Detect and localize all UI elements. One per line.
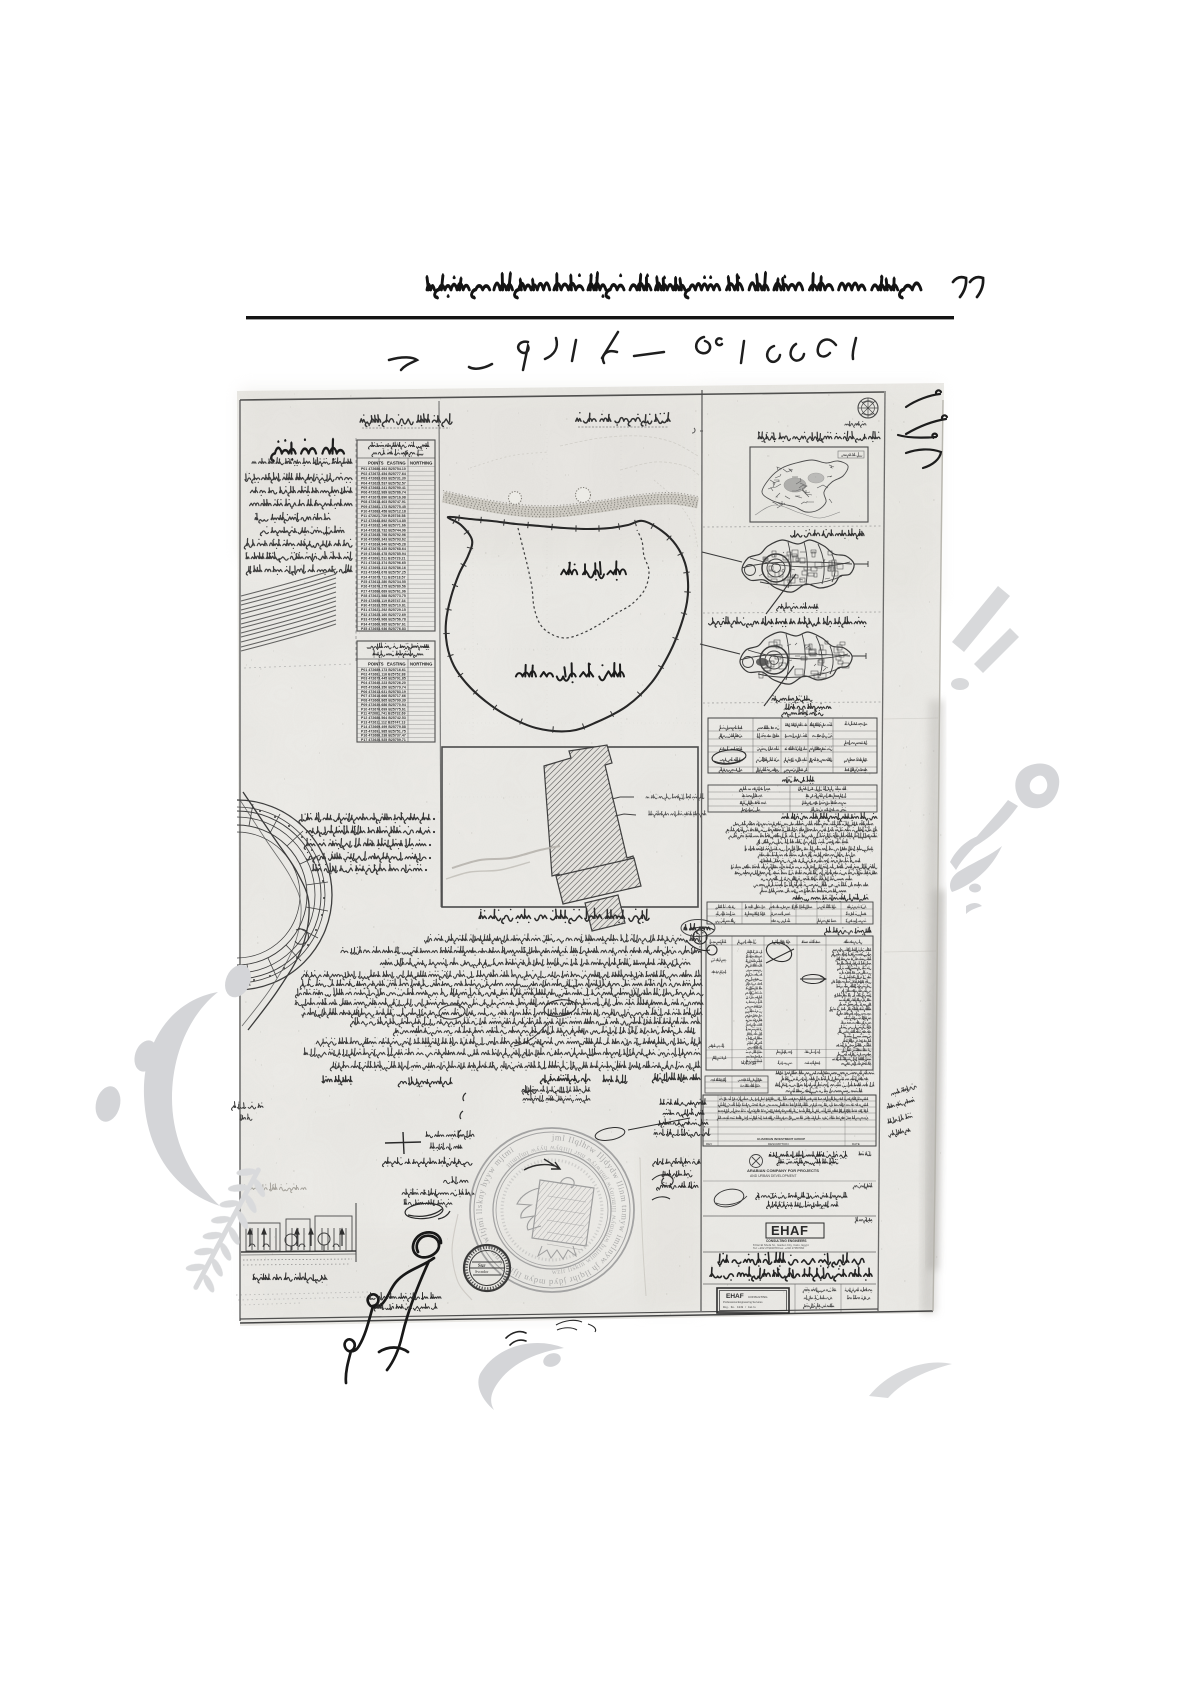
- svg-text:P07 472675.890 B25716.98: P07 472675.890 B25716.98: [361, 495, 406, 499]
- svg-text:P29 472658.119 B25747.34: P29 472658.119 B25747.34: [361, 599, 406, 603]
- svg-text:P08 472660.865 B25799.39: P08 472660.865 B25799.39: [361, 699, 406, 703]
- svg-text:Reg. No. 1049 / Cairo: Reg. No. 1049 / Cairo: [723, 1305, 756, 1309]
- svg-text:POINTS: POINTS: [368, 461, 384, 466]
- svg-text:P30 472633.555 B25710.81: P30 472633.555 B25710.81: [361, 604, 406, 608]
- svg-text:EHAF: EHAF: [726, 1293, 744, 1300]
- svg-text:P20 472691.511 B25729.21: P20 472691.511 B25729.21: [361, 557, 406, 561]
- svg-text:P01 472686.464 B25754.10: P01 472686.464 B25754.10: [361, 467, 406, 471]
- svg-text:P27 472686.689 B25761.96: P27 472686.689 B25761.96: [361, 589, 406, 593]
- svg-text:P09 472630.686 B25770.94: P09 472630.686 B25770.94: [361, 703, 406, 707]
- svg-text:P13 472632.148 B25771.66: P13 472632.148 B25771.66: [361, 524, 406, 528]
- svg-text:P18 472676.435 B25768.64: P18 472676.435 B25768.64: [361, 547, 406, 551]
- svg-text:POINTS: POINTS: [368, 662, 384, 667]
- svg-text:P31 472621.292 B25729.15: P31 472621.292 B25729.15: [361, 608, 406, 612]
- svg-text:P15 472691.985 B25751.75: P15 472691.985 B25751.75: [361, 729, 406, 733]
- svg-text:P23 472643.678 B25757.25: P23 472643.678 B25757.25: [361, 571, 406, 575]
- svg-text:P34 472660.985 B25767.61: P34 472660.985 B25767.61: [361, 622, 406, 626]
- svg-text:P02 472681.116 B25752.88: P02 472681.116 B25752.88: [361, 672, 406, 676]
- svg-text:P04 472625.537 B25752.57: P04 472625.537 B25752.57: [361, 481, 406, 485]
- svg-text:P03 472675.445 B25791.85: P03 472675.445 B25791.85: [361, 677, 406, 681]
- svg-text:P26 472676.275 B25780.56: P26 472676.275 B25780.56: [361, 585, 406, 589]
- svg-text:Svcndor: Svcndor: [475, 1269, 489, 1274]
- svg-text:P11 472621.739 B25736.58: P11 472621.739 B25736.58: [361, 514, 406, 518]
- svg-text:P12 472686.564 B25742.53: P12 472686.564 B25742.53: [361, 716, 406, 720]
- svg-text:P21 472613.374 B25796.65: P21 472613.374 B25796.65: [361, 561, 406, 565]
- svg-text:NORTHING: NORTHING: [410, 662, 432, 667]
- svg-text:P15 472635.798 B25792.96: P15 472635.798 B25792.96: [361, 533, 406, 537]
- svg-text:GUARDIAN INVESTMENT GROUP: GUARDIAN INVESTMENT GROUP: [757, 1137, 805, 1141]
- svg-text:P33 472649.968 B25756.78: P33 472649.968 B25756.78: [361, 618, 406, 622]
- svg-text:P19 472640.478 B25785.94: P19 472640.478 B25785.94: [361, 552, 406, 556]
- svg-text:P35 472653.936 B25776.83: P35 472653.936 B25776.83: [361, 627, 406, 631]
- svg-text:P01 472689.173 B25716.61: P01 472689.173 B25716.61: [361, 668, 406, 672]
- svg-text:P28 472621.588 B25773.75: P28 472621.588 B25773.75: [361, 594, 406, 598]
- svg-text:DATE: DATE: [852, 1142, 860, 1146]
- svg-text:P03 472683.693 B25731.30: P03 472683.693 B25731.30: [361, 477, 406, 481]
- svg-text:EHAF: EHAF: [771, 1223, 808, 1238]
- svg-text:P11 472681.741 B25732.69: P11 472681.741 B25732.69: [361, 712, 406, 716]
- svg-text:P16 472660.343 B25793.62: P16 472660.343 B25793.62: [361, 538, 406, 542]
- svg-text:P32 472625.160 B25772.69: P32 472625.160 B25772.69: [361, 613, 406, 617]
- svg-text:DESCRIPTION: DESCRIPTION: [768, 1142, 789, 1146]
- svg-text:P12 472648.892 B25714.85: P12 472648.892 B25714.85: [361, 519, 406, 523]
- svg-text:AND URBAN DEVELOPMENT: AND URBAN DEVELOPMENT: [750, 1174, 797, 1178]
- svg-text:P17 472626.525 B25759.71: P17 472626.525 B25759.71: [361, 738, 406, 742]
- svg-text:P06 472622.989 B25786.74: P06 472622.989 B25786.74: [361, 491, 406, 495]
- svg-text:Professional Engineering Servi: Professional Engineering Services: [723, 1300, 763, 1304]
- svg-text:Tel: +202 27943078 Fax: +202: Tel: +202 27943078 Fax: +202 27957060: [753, 1246, 805, 1250]
- svg-text:P17 472634.940 B25745.28: P17 472634.940 B25745.28: [361, 542, 406, 546]
- svg-text:REV: REV: [706, 1142, 712, 1146]
- svg-text:P22 472693.313 B25786.16: P22 472693.313 B25786.16: [361, 566, 406, 570]
- svg-text:EASTING: EASTING: [387, 461, 406, 466]
- svg-text:P08 472618.403 B25747.91: P08 472618.403 B25747.91: [361, 500, 406, 504]
- svg-text:P09 472681.173 B25775.45: P09 472681.173 B25775.45: [361, 505, 406, 509]
- svg-text:P05 472683.241 B25790.41: P05 472683.241 B25790.41: [361, 486, 406, 490]
- svg-text:P10 472683.458 B25712.18: P10 472683.458 B25712.18: [361, 510, 406, 514]
- svg-text:P14 472669.499 B25779.88: P14 472669.499 B25779.88: [361, 725, 406, 729]
- svg-text:P06 472613.631 B25783.19: P06 472613.631 B25783.19: [361, 690, 406, 694]
- svg-text:EASTING: EASTING: [387, 662, 406, 667]
- svg-text:P05 472664.350 B25779.74: P05 472664.350 B25779.74: [361, 685, 406, 689]
- svg-text:P13 472611.112 B25747.13: P13 472611.112 B25747.13: [361, 721, 405, 725]
- svg-text:P07 472616.666 B25717.66: P07 472616.666 B25717.66: [361, 694, 406, 698]
- svg-text:NORTHING: NORTHING: [410, 461, 432, 466]
- svg-text:CONSULTING: CONSULTING: [748, 1295, 768, 1299]
- svg-text:P02 472672.454 B25777.64: P02 472672.454 B25777.64: [361, 472, 406, 476]
- svg-text:P25 472613.280 B25734.55: P25 472613.280 B25734.55: [361, 580, 406, 584]
- svg-text:ARABIAN COMPANY FOR PROJECTS: ARABIAN COMPANY FOR PROJECTS: [747, 1168, 819, 1173]
- svg-text:P24 472675.711 B25718.57: P24 472675.711 B25718.57: [361, 575, 406, 579]
- svg-text:P14 472616.732 B25744.96: P14 472616.732 B25744.96: [361, 528, 406, 532]
